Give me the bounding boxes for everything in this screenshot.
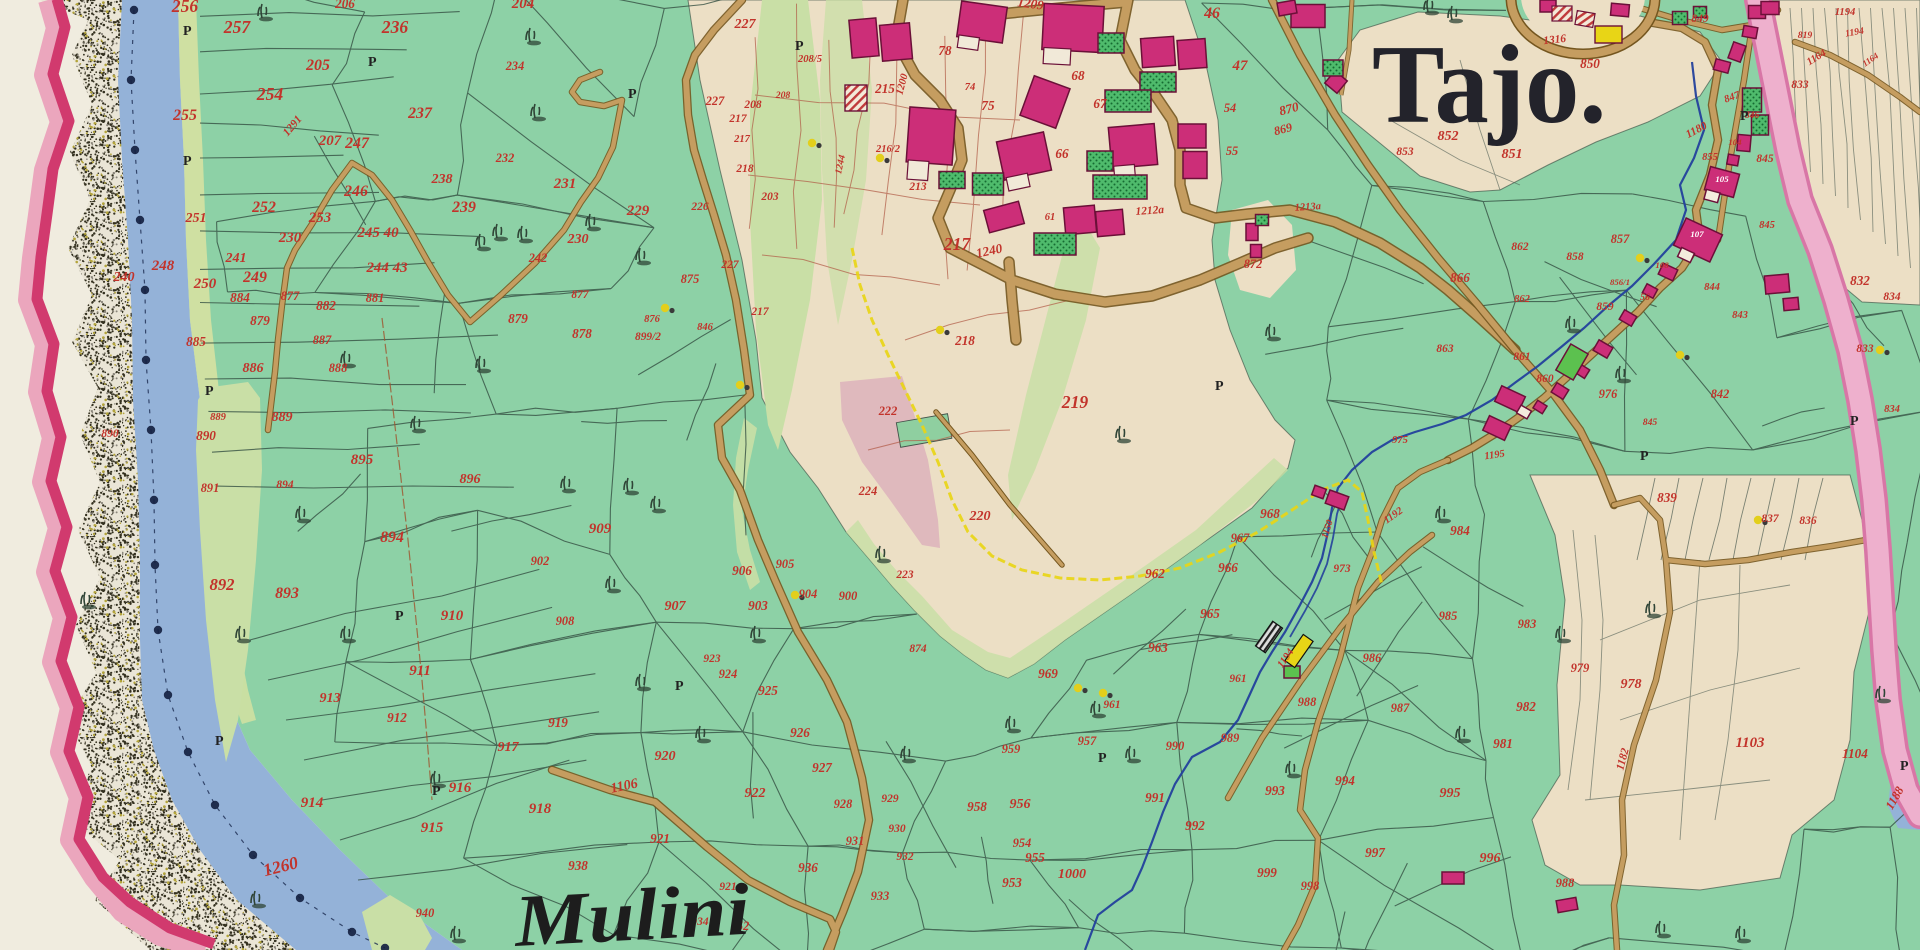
svg-text:215: 215 — [874, 81, 895, 96]
svg-text:923: 923 — [703, 653, 720, 665]
svg-text:242: 242 — [528, 251, 547, 265]
svg-text:992: 992 — [1185, 818, 1205, 833]
svg-text:888: 888 — [329, 361, 347, 375]
svg-text:845: 845 — [1643, 417, 1658, 428]
svg-text:218: 218 — [735, 163, 753, 175]
svg-text:885: 885 — [186, 334, 206, 349]
svg-text:216/2: 216/2 — [875, 144, 901, 155]
svg-text:954: 954 — [1013, 836, 1031, 850]
svg-text:P: P — [395, 609, 404, 624]
svg-text:875: 875 — [681, 272, 699, 286]
svg-text:P: P — [675, 679, 684, 694]
svg-text:879: 879 — [508, 311, 528, 326]
svg-text:206: 206 — [334, 0, 355, 11]
svg-text:932: 932 — [896, 851, 913, 863]
svg-text:832: 832 — [1850, 273, 1870, 288]
svg-text:956: 956 — [1009, 796, 1031, 812]
svg-text:833: 833 — [1856, 343, 1873, 355]
svg-text:894: 894 — [276, 479, 293, 491]
svg-text:833: 833 — [1791, 79, 1808, 91]
svg-text:989: 989 — [1221, 731, 1239, 745]
svg-text:993: 993 — [1265, 783, 1285, 798]
svg-text:218: 218 — [954, 333, 975, 348]
svg-text:227: 227 — [720, 259, 739, 271]
svg-text:Mulini: Mulini — [510, 868, 751, 950]
svg-text:843: 843 — [1732, 310, 1748, 321]
svg-text:230: 230 — [278, 230, 302, 246]
svg-text:254: 254 — [256, 84, 284, 104]
svg-text:208: 208 — [775, 90, 791, 101]
svg-text:257: 257 — [223, 17, 252, 37]
svg-text:990: 990 — [1166, 739, 1184, 753]
svg-text:889: 889 — [271, 409, 292, 425]
svg-text:924: 924 — [719, 667, 737, 681]
svg-text:Tajo.: Tajo. — [1372, 23, 1606, 147]
svg-text:917: 917 — [497, 739, 519, 755]
svg-text:969: 969 — [1038, 666, 1058, 681]
svg-text:207: 207 — [318, 133, 342, 149]
svg-text:236: 236 — [381, 17, 409, 37]
svg-text:986: 986 — [1363, 651, 1382, 665]
svg-text:47: 47 — [1232, 58, 1248, 74]
svg-text:1103: 1103 — [1735, 735, 1765, 751]
svg-text:853: 853 — [1396, 146, 1413, 158]
svg-text:1213a: 1213a — [1294, 201, 1322, 214]
svg-text:913: 913 — [319, 690, 340, 706]
svg-text:985: 985 — [1439, 609, 1457, 623]
svg-text:856/1: 856/1 — [1610, 277, 1630, 287]
svg-text:253: 253 — [308, 210, 332, 226]
svg-text:905: 905 — [776, 557, 794, 571]
svg-text:839: 839 — [1657, 490, 1677, 505]
svg-text:959: 959 — [1002, 742, 1020, 756]
svg-text:108: 108 — [1655, 260, 1669, 270]
svg-text:991: 991 — [1145, 790, 1165, 805]
svg-text:936: 936 — [798, 860, 818, 875]
svg-text:237: 237 — [407, 105, 433, 122]
svg-text:819: 819 — [1798, 30, 1813, 41]
svg-text:915: 915 — [421, 820, 444, 836]
svg-text:953: 953 — [1002, 875, 1022, 890]
svg-text:1212a: 1212a — [1135, 204, 1165, 218]
svg-text:899/2: 899/2 — [635, 331, 661, 343]
svg-text:234: 234 — [505, 59, 524, 73]
svg-text:874: 874 — [909, 643, 926, 655]
svg-text:902: 902 — [531, 554, 549, 568]
svg-text:966: 966 — [1218, 560, 1238, 575]
svg-text:217: 217 — [750, 306, 769, 318]
svg-text:857: 857 — [1611, 232, 1630, 246]
svg-text:988: 988 — [1556, 876, 1574, 890]
svg-text:217: 217 — [943, 234, 972, 254]
svg-text:837: 837 — [1761, 513, 1779, 525]
svg-text:859: 859 — [1596, 301, 1613, 313]
svg-text:893: 893 — [275, 585, 299, 602]
svg-text:204: 204 — [511, 0, 535, 12]
svg-text:973: 973 — [1333, 563, 1350, 575]
svg-text:255: 255 — [172, 107, 197, 124]
svg-text:907: 907 — [664, 598, 686, 614]
svg-text:75: 75 — [981, 98, 995, 113]
svg-text:203: 203 — [760, 191, 778, 203]
svg-text:245 40: 245 40 — [356, 225, 399, 241]
svg-text:994: 994 — [1335, 773, 1355, 788]
svg-text:997: 997 — [1365, 845, 1386, 860]
svg-text:998: 998 — [1301, 879, 1319, 893]
svg-text:845: 845 — [1756, 153, 1773, 165]
svg-text:910: 910 — [441, 608, 464, 624]
svg-text:962: 962 — [1145, 566, 1165, 581]
svg-text:938: 938 — [568, 858, 588, 873]
svg-text:987: 987 — [1391, 701, 1410, 715]
svg-text:240: 240 — [112, 269, 134, 285]
svg-text:978: 978 — [1620, 676, 1641, 692]
svg-text:849: 849 — [1691, 13, 1708, 25]
svg-text:241: 241 — [224, 250, 246, 266]
svg-text:227: 227 — [733, 16, 756, 32]
svg-text:P: P — [183, 154, 192, 169]
svg-text:925: 925 — [758, 683, 778, 698]
svg-text:912: 912 — [387, 710, 407, 725]
svg-text:105: 105 — [1715, 174, 1729, 184]
svg-text:P: P — [215, 734, 224, 749]
svg-text:858: 858 — [1566, 251, 1583, 263]
svg-text:61: 61 — [1045, 212, 1056, 223]
svg-text:P: P — [628, 87, 637, 102]
svg-text:1194: 1194 — [1835, 7, 1856, 18]
svg-text:894: 894 — [380, 529, 404, 546]
svg-text:976: 976 — [1599, 387, 1618, 401]
svg-text:P: P — [368, 55, 377, 70]
svg-text:845: 845 — [1759, 220, 1775, 231]
svg-text:929: 929 — [881, 793, 898, 805]
svg-text:961: 961 — [1229, 673, 1246, 685]
svg-text:921: 921 — [650, 831, 670, 846]
svg-text:P: P — [1640, 449, 1649, 464]
svg-text:223: 223 — [895, 569, 913, 581]
svg-text:862: 862 — [1511, 241, 1528, 253]
svg-text:54: 54 — [1224, 101, 1236, 115]
svg-text:1104: 1104 — [1842, 746, 1868, 761]
svg-text:965: 965 — [1200, 606, 1220, 621]
svg-text:244 43: 244 43 — [365, 260, 408, 276]
svg-text:213: 213 — [908, 181, 926, 193]
svg-text:842: 842 — [1711, 387, 1729, 401]
svg-text:224: 224 — [858, 484, 877, 498]
svg-text:230: 230 — [566, 231, 588, 247]
svg-text:957: 957 — [1078, 734, 1097, 748]
svg-text:919: 919 — [548, 715, 568, 730]
svg-text:886: 886 — [242, 360, 264, 376]
svg-text:78: 78 — [938, 43, 952, 58]
svg-text:955: 955 — [1025, 850, 1045, 865]
svg-text:P: P — [183, 24, 192, 39]
svg-text:982: 982 — [1516, 699, 1536, 714]
svg-text:933: 933 — [871, 889, 889, 903]
svg-text:931: 931 — [846, 834, 864, 848]
svg-text:926: 926 — [790, 725, 810, 740]
svg-text:251: 251 — [184, 210, 206, 226]
svg-text:877: 877 — [571, 289, 589, 301]
svg-text:836: 836 — [1799, 515, 1816, 527]
svg-text:996: 996 — [1479, 850, 1501, 866]
svg-text:968: 968 — [1260, 506, 1280, 521]
svg-text:252: 252 — [251, 199, 276, 216]
svg-text:219: 219 — [1061, 392, 1089, 412]
svg-text:963: 963 — [1148, 640, 1168, 655]
svg-text:981: 981 — [1493, 736, 1513, 751]
svg-text:67: 67 — [1093, 96, 1108, 111]
svg-text:930: 930 — [888, 823, 905, 835]
svg-text:918: 918 — [529, 801, 552, 817]
svg-text:844: 844 — [1704, 282, 1720, 293]
svg-text:900: 900 — [839, 589, 857, 603]
svg-text:895: 895 — [351, 452, 374, 468]
svg-text:249: 249 — [242, 269, 267, 286]
svg-text:104: 104 — [1728, 137, 1742, 147]
svg-text:862: 862 — [1514, 294, 1531, 305]
svg-text:227: 227 — [705, 94, 725, 108]
svg-text:984: 984 — [1450, 523, 1470, 538]
svg-text:222: 222 — [878, 404, 897, 418]
svg-text:834: 834 — [1884, 404, 1900, 415]
svg-text:P: P — [1740, 109, 1749, 124]
svg-text:891: 891 — [201, 481, 219, 495]
svg-text:999: 999 — [1257, 865, 1277, 880]
svg-text:205: 205 — [305, 57, 330, 74]
svg-text:920: 920 — [654, 748, 675, 764]
svg-text:861: 861 — [1513, 351, 1530, 363]
svg-text:927: 927 — [812, 760, 833, 775]
svg-text:872: 872 — [1244, 257, 1262, 271]
svg-text:834: 834 — [1883, 291, 1900, 303]
svg-text:903: 903 — [748, 598, 768, 613]
svg-text:922: 922 — [744, 785, 765, 801]
svg-text:879: 879 — [250, 313, 270, 328]
svg-text:908: 908 — [556, 614, 574, 628]
svg-text:239: 239 — [451, 199, 476, 216]
svg-text:961: 961 — [1103, 699, 1120, 711]
svg-text:66: 66 — [1055, 146, 1069, 161]
svg-text:890: 890 — [196, 428, 216, 443]
svg-text:892: 892 — [209, 575, 234, 594]
svg-text:217: 217 — [733, 134, 751, 145]
svg-text:909: 909 — [589, 521, 612, 537]
svg-text:226: 226 — [690, 201, 708, 213]
svg-text:878: 878 — [572, 326, 592, 341]
svg-text:247: 247 — [344, 135, 370, 152]
svg-text:979: 979 — [1571, 661, 1589, 675]
svg-text:208/5: 208/5 — [797, 54, 822, 65]
svg-text:916: 916 — [449, 780, 472, 796]
svg-text:904: 904 — [799, 587, 817, 601]
svg-text:229: 229 — [626, 203, 650, 219]
svg-text:P: P — [1900, 759, 1909, 774]
svg-text:983: 983 — [1518, 617, 1536, 631]
svg-text:246: 246 — [343, 183, 368, 200]
svg-text:68: 68 — [1071, 68, 1085, 83]
svg-text:P: P — [1850, 414, 1859, 429]
svg-text:208: 208 — [743, 99, 761, 111]
svg-text:906: 906 — [732, 563, 752, 578]
svg-text:866: 866 — [1450, 270, 1470, 285]
svg-text:P: P — [1215, 379, 1224, 394]
svg-text:911: 911 — [409, 663, 431, 679]
svg-text:884: 884 — [230, 290, 250, 305]
svg-text:851: 851 — [1501, 146, 1522, 162]
svg-text:967: 967 — [1231, 531, 1250, 545]
svg-text:846: 846 — [697, 322, 714, 333]
svg-text:958: 958 — [967, 799, 987, 814]
svg-text:863: 863 — [1436, 343, 1453, 355]
svg-text:887: 887 — [313, 333, 332, 347]
svg-text:P: P — [432, 784, 441, 799]
svg-text:220: 220 — [968, 508, 990, 524]
svg-text:56: 56 — [1640, 292, 1650, 303]
svg-text:928: 928 — [834, 797, 852, 811]
svg-text:855: 855 — [1702, 152, 1718, 163]
svg-text:995: 995 — [1439, 785, 1460, 801]
svg-text:231: 231 — [553, 176, 576, 192]
svg-text:860: 860 — [1536, 373, 1553, 385]
svg-text:46: 46 — [1203, 5, 1220, 22]
svg-text:890: 890 — [101, 428, 118, 440]
svg-text:881: 881 — [366, 291, 384, 305]
svg-text:876: 876 — [644, 314, 661, 325]
svg-text:250: 250 — [193, 276, 217, 292]
svg-text:889: 889 — [210, 412, 227, 423]
svg-text:238: 238 — [430, 171, 452, 187]
svg-text:1000: 1000 — [1058, 866, 1086, 882]
svg-text:107: 107 — [1690, 229, 1704, 239]
svg-text:P: P — [1098, 751, 1107, 766]
svg-text:248: 248 — [151, 258, 175, 274]
svg-text:988: 988 — [1298, 695, 1316, 709]
svg-text:P: P — [205, 384, 214, 399]
svg-text:217: 217 — [728, 113, 747, 125]
svg-text:940: 940 — [416, 906, 434, 920]
svg-text:232: 232 — [495, 151, 514, 165]
svg-text:882: 882 — [316, 298, 336, 313]
svg-text:74: 74 — [965, 82, 976, 93]
svg-text:914: 914 — [301, 795, 324, 811]
svg-text:P: P — [795, 39, 804, 54]
svg-text:256: 256 — [171, 0, 199, 16]
svg-text:877: 877 — [281, 289, 300, 303]
svg-text:55: 55 — [1226, 144, 1238, 158]
svg-text:975: 975 — [1392, 435, 1408, 446]
svg-text:896: 896 — [459, 471, 481, 487]
